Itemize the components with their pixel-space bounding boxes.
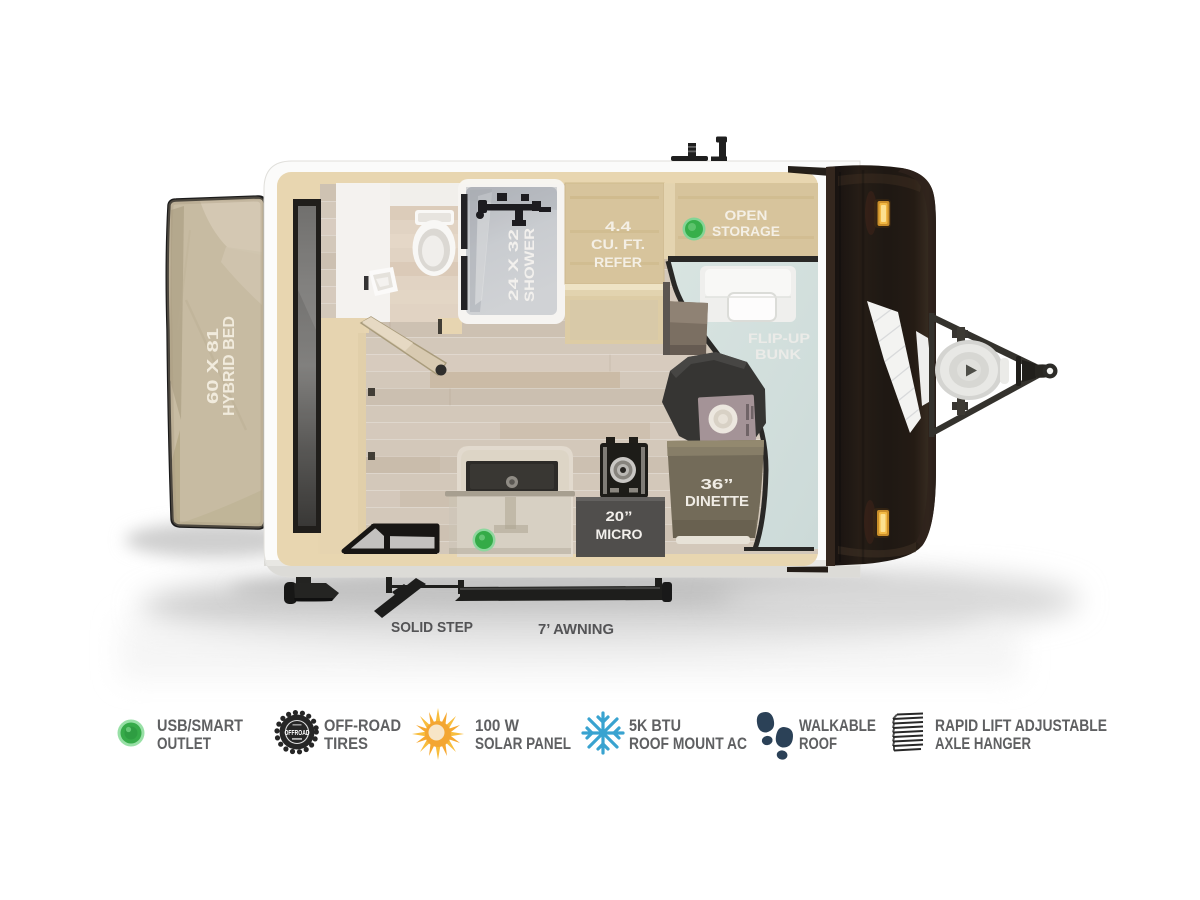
svg-text:WALKABLE: WALKABLE bbox=[799, 717, 876, 735]
svg-text:FLIP-UP: FLIP-UP bbox=[748, 331, 810, 346]
svg-text:RAPID LIFT ADJUSTABLE: RAPID LIFT ADJUSTABLE bbox=[935, 717, 1107, 735]
svg-text:60 X 81: 60 X 81 bbox=[205, 327, 222, 404]
svg-text:OPEN: OPEN bbox=[725, 208, 768, 223]
svg-text:STORAGE: STORAGE bbox=[712, 224, 780, 239]
svg-text:CU. FT.: CU. FT. bbox=[591, 237, 645, 252]
svg-text:AXLE HANGER: AXLE HANGER bbox=[935, 735, 1031, 753]
svg-text:24 X 32: 24 X 32 bbox=[505, 229, 521, 301]
svg-text:5K BTU: 5K BTU bbox=[629, 717, 681, 735]
svg-text:DINETTE: DINETTE bbox=[685, 493, 749, 510]
svg-text:OFFROAD: OFFROAD bbox=[285, 728, 310, 737]
svg-text:4.4: 4.4 bbox=[605, 219, 632, 234]
svg-text:REFER: REFER bbox=[594, 255, 642, 270]
svg-text:7’ AWNING: 7’ AWNING bbox=[538, 621, 614, 638]
svg-text:USB/SMART: USB/SMART bbox=[157, 717, 243, 735]
svg-text:36”: 36” bbox=[701, 476, 734, 493]
svg-text:OFF-ROAD: OFF-ROAD bbox=[324, 717, 401, 735]
svg-text:100 W: 100 W bbox=[475, 717, 519, 735]
svg-text:BUNK: BUNK bbox=[755, 347, 801, 362]
svg-text:SOLAR PANEL: SOLAR PANEL bbox=[475, 735, 571, 753]
svg-text:MICRO: MICRO bbox=[596, 526, 643, 542]
svg-text:ROOF: ROOF bbox=[799, 735, 837, 753]
svg-text:20”: 20” bbox=[606, 508, 633, 524]
svg-text:SHOWER: SHOWER bbox=[521, 228, 537, 302]
svg-text:OUTLET: OUTLET bbox=[157, 735, 211, 753]
svg-text:TIRES: TIRES bbox=[324, 735, 368, 753]
svg-text:SOLID STEP: SOLID STEP bbox=[391, 619, 473, 636]
svg-text:ROOF MOUNT AC: ROOF MOUNT AC bbox=[629, 735, 747, 753]
svg-text:HYBRID BED: HYBRID BED bbox=[221, 316, 238, 416]
